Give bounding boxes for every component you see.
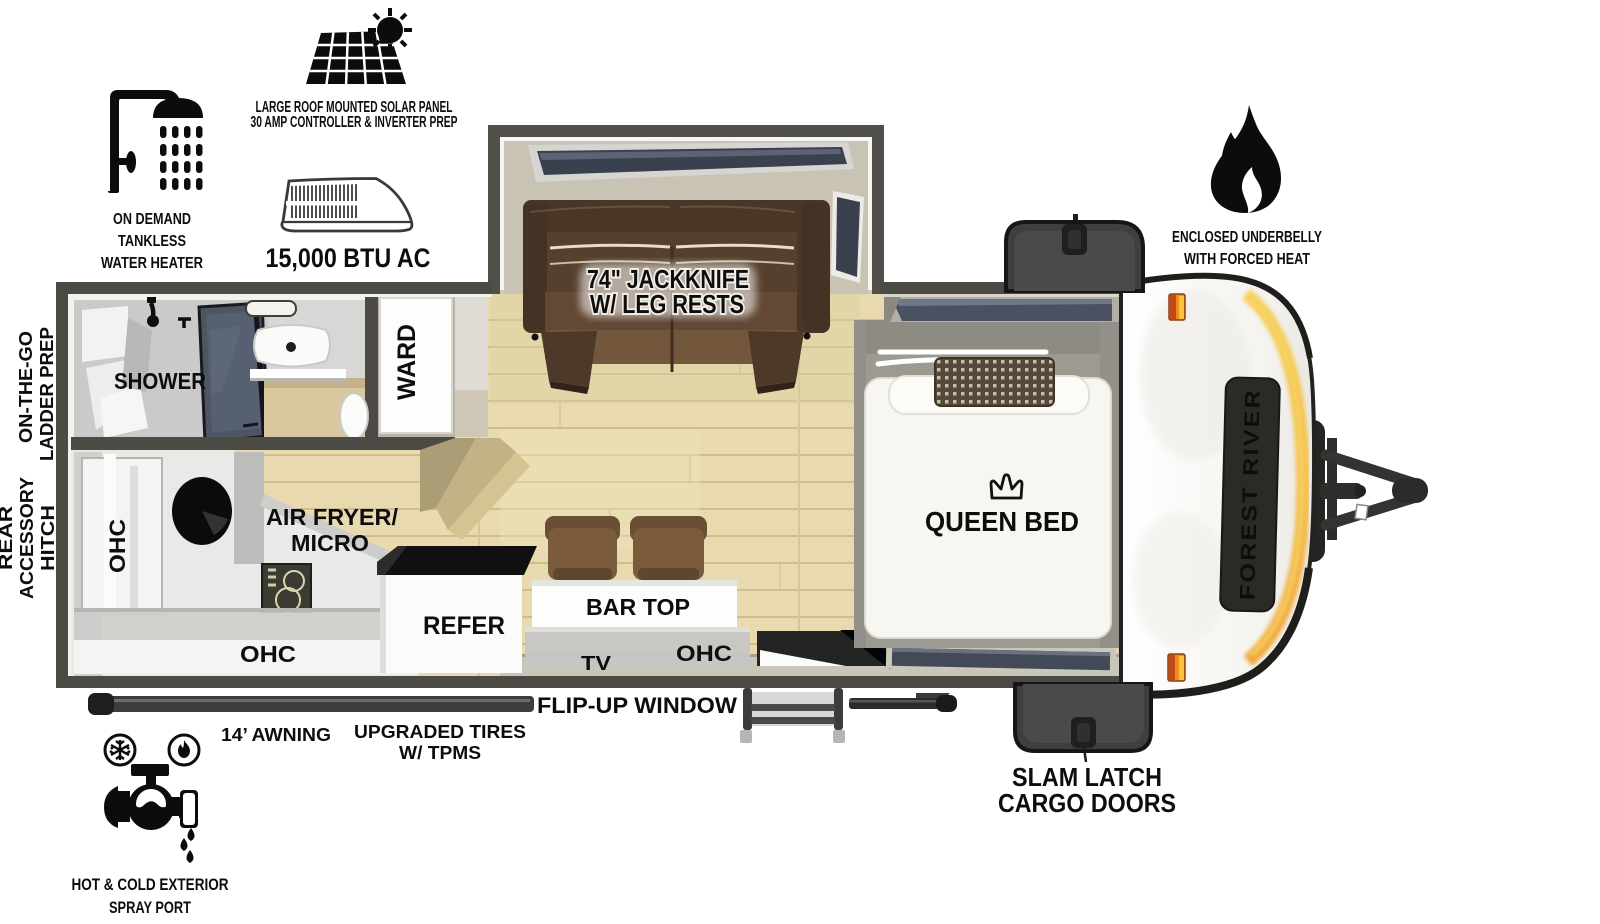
svg-text:QUEEN BED: QUEEN BED (925, 506, 1079, 537)
svg-text:LADDER PREP: LADDER PREP (37, 327, 57, 461)
svg-text:ACCESSORY: ACCESSORY (17, 477, 37, 599)
svg-text:W/ TPMS: W/ TPMS (399, 743, 481, 763)
svg-text:WITH FORCED HEAT: WITH FORCED HEAT (1184, 251, 1310, 268)
svg-text:ON-THE-GO: ON-THE-GO (16, 331, 36, 443)
svg-text:UPGRADED TIRES: UPGRADED TIRES (354, 722, 526, 742)
svg-text:SHOWER: SHOWER (114, 368, 206, 394)
svg-text:OHC: OHC (105, 519, 130, 573)
svg-text:FLIP-UP WINDOW: FLIP-UP WINDOW (537, 693, 737, 718)
svg-text:MICRO: MICRO (291, 530, 369, 556)
svg-text:SPRAY PORT: SPRAY PORT (109, 898, 191, 917)
svg-text:W/ LEG RESTS: W/ LEG RESTS (590, 289, 744, 319)
svg-text:15,000 BTU AC: 15,000 BTU AC (266, 243, 431, 273)
svg-text:CARGO DOORS: CARGO DOORS (998, 788, 1176, 818)
svg-text:HOT & COLD EXTERIOR: HOT & COLD EXTERIOR (72, 875, 229, 894)
svg-text:REFER: REFER (423, 612, 505, 640)
svg-text:OHC: OHC (676, 641, 732, 666)
svg-text:30 AMP CONTROLLER & INVERTER P: 30 AMP CONTROLLER & INVERTER PREP (251, 114, 458, 131)
svg-text:TV: TV (581, 653, 612, 675)
svg-text:AIR FRYER/: AIR FRYER/ (266, 504, 399, 530)
svg-text:14’ AWNING: 14’ AWNING (221, 725, 331, 745)
svg-text:TANKLESS: TANKLESS (118, 233, 186, 250)
svg-text:BAR TOP: BAR TOP (586, 594, 690, 620)
svg-text:HITCH: HITCH (38, 505, 58, 571)
svg-text:ENCLOSED UNDERBELLY: ENCLOSED UNDERBELLY (1172, 229, 1322, 246)
svg-text:WARD: WARD (393, 324, 421, 400)
svg-text:OHC: OHC (240, 641, 296, 667)
svg-text:ON DEMAND: ON DEMAND (113, 211, 191, 228)
svg-text:WATER HEATER: WATER HEATER (101, 255, 203, 272)
svg-text:REAR: REAR (0, 506, 16, 570)
